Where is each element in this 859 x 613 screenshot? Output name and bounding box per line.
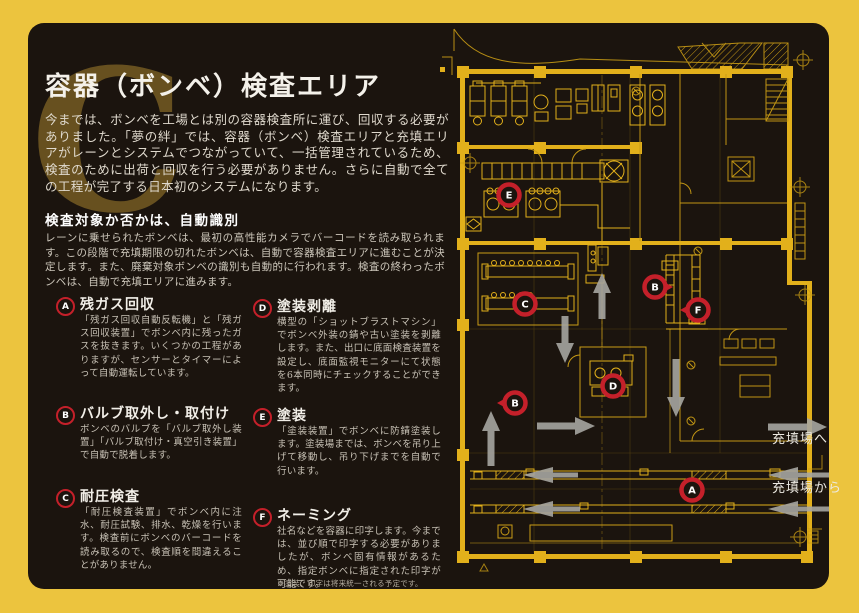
- step-badge-A: A: [56, 297, 75, 316]
- flow-arrow-down: [556, 316, 574, 363]
- step-body-C: 「耐圧検査装置」でボンベ内に注水、耐圧試験、排水、乾燥を行います。検査前にボンベ…: [80, 506, 242, 572]
- step-badge-B: B: [56, 406, 75, 425]
- flow-arrow-left: [523, 501, 580, 517]
- plan-marker-E: E: [499, 185, 520, 206]
- step-body-E: 「塗装装置」でボンベに防錆塗装します。塗装場までは、ボンベを吊り上げて移動し、吊…: [277, 425, 441, 478]
- auto-detect-paragraph: レーンに乗せられたボンベは、最初の高性能カメラでバーコードを読み取られます。この…: [45, 231, 445, 290]
- flow-arrow-left: [768, 501, 829, 517]
- svg-text:B: B: [511, 399, 519, 410]
- step-body-A: 「残ガス回収自動反転機」と「残ガス回収装置」でボンベ内に残ったガスを抜きます。い…: [80, 314, 242, 380]
- step-badge-D: D: [253, 299, 272, 318]
- plan-marker-D: D: [603, 376, 624, 397]
- plan-machines-top: [470, 81, 665, 125]
- step-title-E: 塗装: [277, 405, 307, 425]
- plan-marker-A: A: [682, 480, 703, 501]
- plan-marker-B: B: [497, 393, 526, 414]
- step-title-C: 耐圧検査: [80, 486, 140, 506]
- flow-arrow-up: [593, 273, 611, 319]
- plan-machines-paint: [466, 160, 630, 241]
- plan-marker-F: F: [680, 300, 709, 321]
- plan-label-to-filling-area: 充填場へ: [772, 431, 828, 447]
- step-badge-F: F: [253, 508, 272, 527]
- svg-text:A: A: [688, 486, 696, 497]
- flow-arrow-right: [537, 417, 595, 435]
- plan-machines-center: [586, 245, 708, 453]
- svg-text:F: F: [695, 306, 702, 317]
- step-badge-E: E: [253, 408, 272, 427]
- step-body-D: 横型の「ショットブラストマシン」でボンベ外装の錆や古い塗装を剥離します。また、出…: [277, 316, 441, 395]
- flow-arrow-up: [482, 411, 500, 466]
- page-title: 容器（ボンベ）検査エリア: [45, 66, 381, 103]
- step-title-A: 残ガス回収: [80, 294, 155, 314]
- svg-text:B: B: [651, 283, 659, 294]
- svg-text:D: D: [609, 382, 617, 393]
- plan-marker-C: C: [515, 294, 536, 315]
- step-body-B: ボンベのバルブを「バルブ取外し装置」「バルブ取付け・真空引き装置」で自動で脱着し…: [80, 423, 242, 463]
- auto-detect-heading: 検査対象か否かは、自動識別: [45, 209, 239, 229]
- plan-marker-B: B: [645, 277, 674, 298]
- step-title-B: バルブ取外し・取付け: [80, 403, 230, 423]
- plan-lanes: [470, 469, 808, 543]
- plan-walls: [440, 66, 813, 563]
- step-note-F: ※塗装、印字は将来統一される予定です。: [277, 578, 441, 589]
- floor-plan: ECBFDBA 充填場へ充填場から: [440, 23, 832, 589]
- svg-text:E: E: [506, 191, 513, 202]
- step-title-D: 塗装剥離: [277, 296, 337, 316]
- step-badge-C: C: [56, 489, 75, 508]
- plan-canopy: [442, 29, 788, 75]
- svg-text:C: C: [521, 300, 528, 311]
- plan-label-from-filling-area: 充填場から: [772, 480, 842, 496]
- step-title-F: ネーミング: [277, 505, 352, 525]
- intro-paragraph: 今までは、ボンベを工場とは別の容器検査所に運び、回収する必要がありました。「夢の…: [45, 112, 449, 196]
